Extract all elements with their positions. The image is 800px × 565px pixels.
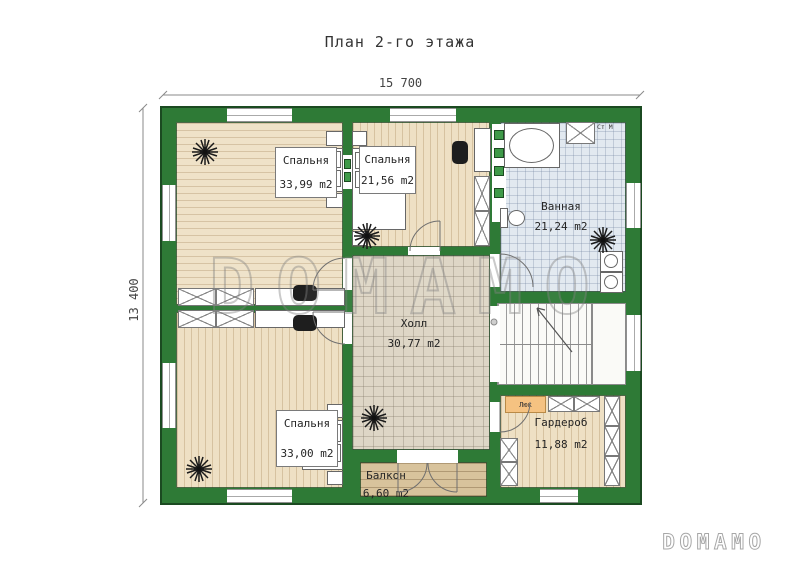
- floor-plan: План 2-го этажа 15 700 13 400: [0, 0, 800, 565]
- wardrobe-cabinet: [500, 438, 518, 462]
- wardrobe-cabinet: [604, 396, 620, 426]
- room-area: 21,56 m2: [361, 175, 414, 186]
- doorway-balcony: [397, 450, 458, 463]
- room-name: Спальня: [364, 154, 410, 165]
- window-left-1: [162, 185, 176, 241]
- room-label-balcony-name: Балкон: [361, 470, 411, 481]
- room-label-wardrobe-area: 11,88 m2: [528, 439, 594, 450]
- nightstand: [352, 131, 367, 146]
- wardrobe-cabinet: [474, 211, 490, 246]
- vent-block: [494, 148, 504, 158]
- window-right-2: [626, 315, 641, 371]
- wardrobe-cabinet: [548, 396, 574, 412]
- room-area: 33,00 m2: [281, 448, 334, 459]
- chair-bedroom3: [293, 315, 317, 331]
- room-label-hall-name: Холл: [384, 318, 444, 329]
- wardrobe-cabinet: [500, 462, 518, 486]
- wardrobe-cabinet: [216, 310, 254, 328]
- wardrobe-cabinet: [604, 456, 620, 486]
- room-label-bathroom-name: Ванная: [528, 201, 594, 212]
- window-bottom-2: [540, 489, 578, 503]
- doorway-bathroom: [490, 254, 500, 287]
- window-right-1: [626, 183, 641, 228]
- room-name: Спальня: [284, 418, 330, 429]
- room-label-wardrobe-name: Гардероб: [528, 417, 594, 428]
- bathtub-basin: [509, 128, 554, 163]
- room-area: 33,99 m2: [280, 179, 333, 190]
- hall-floor: [352, 255, 490, 450]
- watermark-corner: DOMAMO: [636, 530, 792, 554]
- wardrobe-cabinet: [604, 426, 620, 456]
- doorway-bedroom2: [408, 247, 440, 255]
- sink-basin: [604, 275, 618, 289]
- sink-basin: [604, 254, 618, 268]
- room-label-bathroom-area: 21,24 m2: [528, 221, 594, 232]
- washing-machine: [566, 122, 595, 144]
- wardrobe-cabinet: [474, 176, 490, 211]
- dimension-height-label: 13 400: [127, 260, 141, 340]
- window-left-2: [162, 363, 176, 428]
- dimension-width-label: 15 700: [340, 76, 461, 90]
- wardrobe-cabinet: [574, 396, 600, 412]
- room-name: Спальня: [283, 155, 329, 166]
- room-label-bedroom3: Спальня 33,00 m2: [276, 410, 338, 467]
- vent-block: [344, 159, 351, 169]
- washing-machine-label: Ст М: [597, 124, 621, 131]
- doorway-wardrobe: [490, 402, 500, 432]
- room-label-bedroom2: Спальня 21,56 m2: [359, 146, 416, 194]
- page-title: План 2-го этажа: [280, 33, 520, 51]
- window-bottom-1: [227, 489, 292, 503]
- stair-landing: [592, 303, 626, 385]
- doorway-bedroom1: [343, 258, 352, 290]
- vent-block: [344, 172, 351, 182]
- hatch-box: Люк: [505, 396, 546, 413]
- nightstand: [352, 231, 367, 246]
- toilet-bowl: [508, 210, 525, 226]
- desk-bedroom2: [474, 128, 491, 172]
- window-top-2: [390, 108, 456, 122]
- vent-block: [494, 166, 504, 176]
- vent-block: [494, 130, 504, 140]
- nightstand: [327, 471, 343, 485]
- chair-bedroom1: [293, 285, 317, 301]
- room-label-bedroom1: Спальня 33,99 m2: [275, 147, 337, 198]
- window-top-1: [227, 108, 292, 122]
- room-label-balcony-area: 6,60 m2: [358, 488, 414, 499]
- chair-bedroom2: [452, 141, 468, 164]
- vent-block: [494, 188, 504, 198]
- opening-stairs: [490, 306, 500, 382]
- nightstand: [326, 131, 343, 146]
- toilet-tank: [500, 208, 508, 228]
- staircase: [497, 303, 592, 385]
- wardrobe-cabinet: [216, 288, 254, 306]
- wardrobe-cabinet: [178, 288, 216, 306]
- hatch-label: Люк: [519, 401, 532, 409]
- wardrobe-cabinet: [178, 310, 216, 328]
- room-label-hall-area: 30,77 m2: [384, 338, 444, 349]
